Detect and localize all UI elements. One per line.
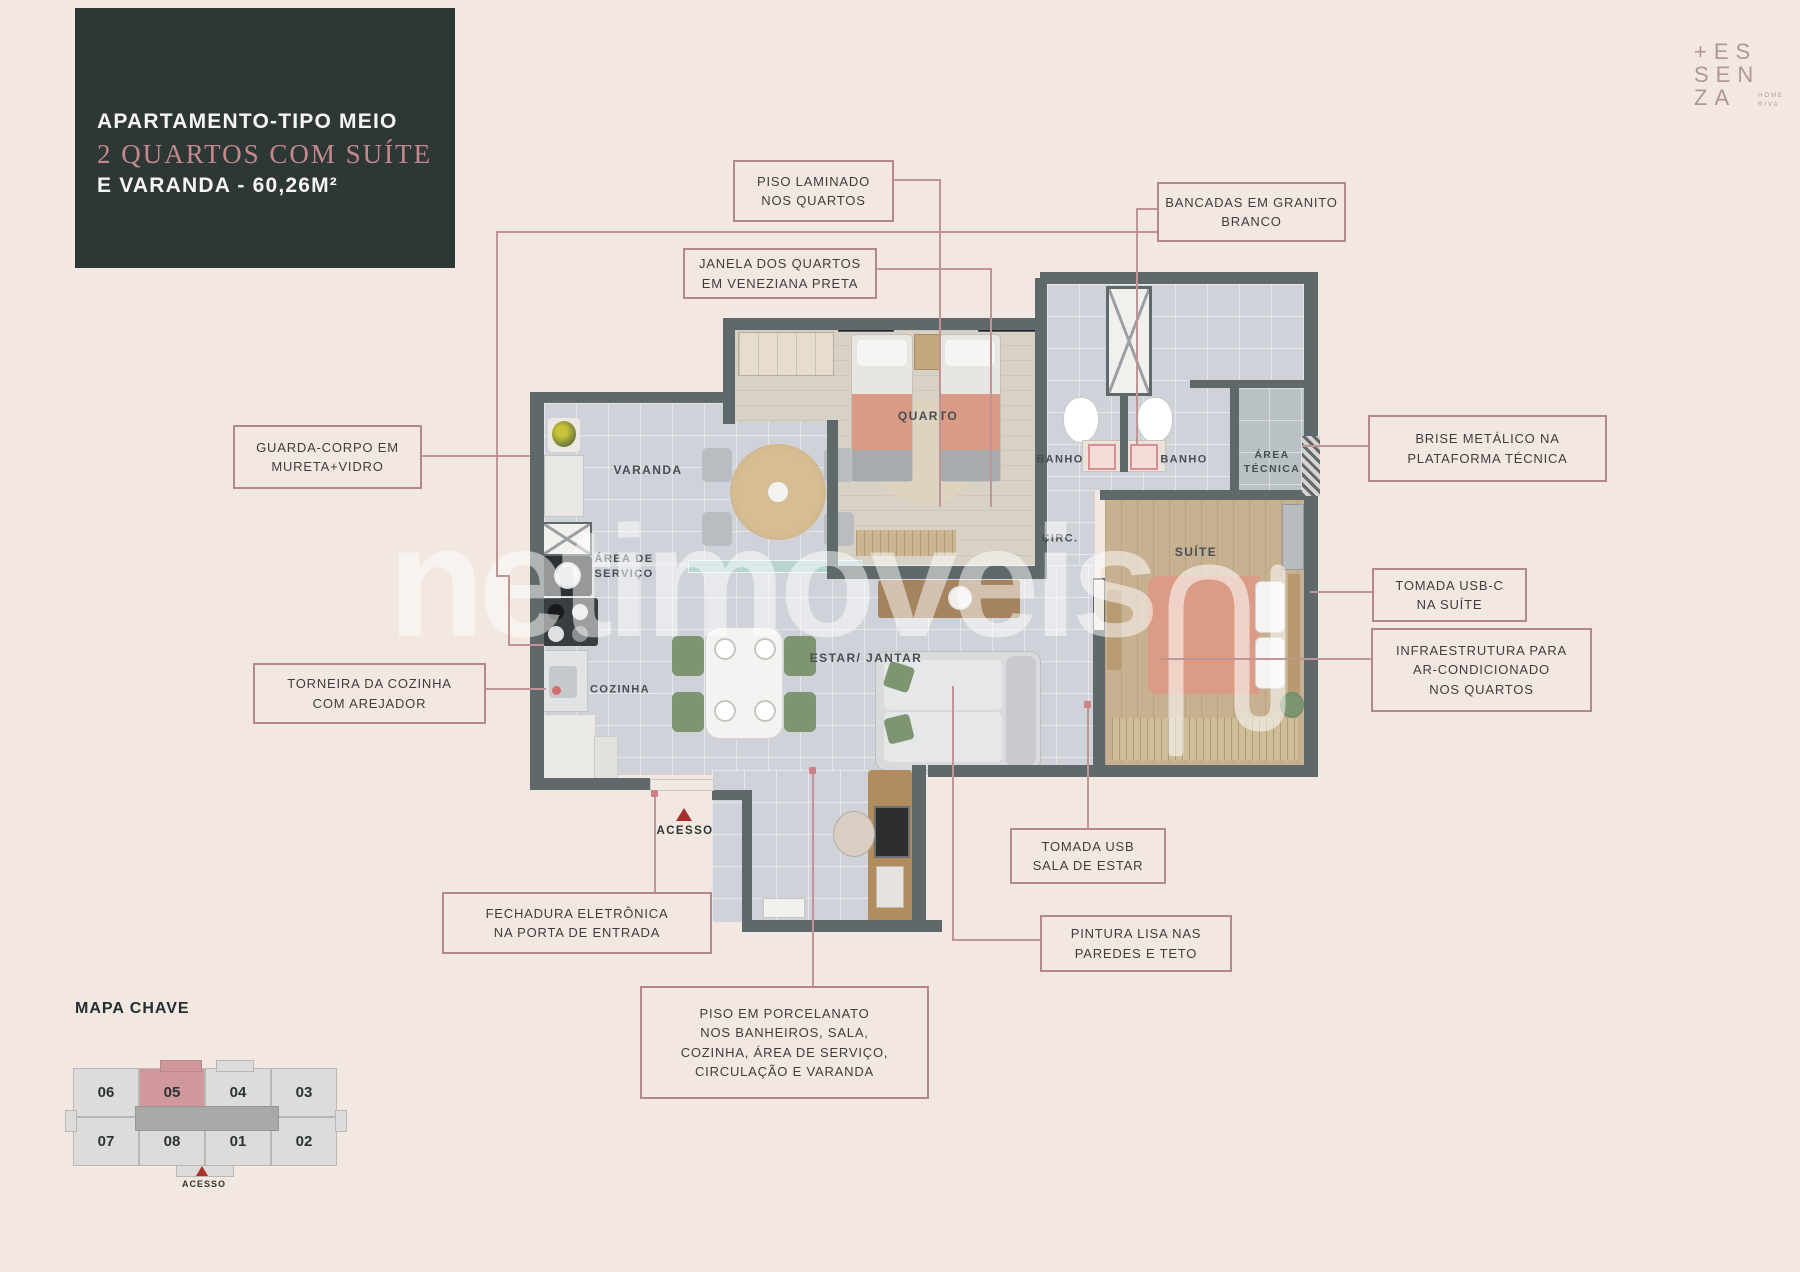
leader-guarda-corpo bbox=[418, 455, 530, 457]
leader-bancadas-cozinha bbox=[497, 231, 1159, 233]
callout-infra-ar: INFRAESTRUTURA PARA AR-CONDICIONADO NOS … bbox=[1371, 628, 1592, 712]
label-banho2: BANHO bbox=[1160, 453, 1207, 468]
desk-monitor bbox=[874, 806, 910, 858]
callout-porcelanato: PISO EM PORCELANATO NOS BANHEIROS, SALA,… bbox=[640, 986, 929, 1099]
quarto-bed1-pillow bbox=[857, 340, 907, 366]
map-unit-07: 07 bbox=[73, 1117, 139, 1166]
callout-brise-text: BRISE METÁLICO NA PLATAFORMA TÉCNICA bbox=[1407, 429, 1567, 468]
leader-porcelanato-dot bbox=[809, 767, 816, 774]
toilet2 bbox=[1138, 398, 1172, 442]
leader-pintura bbox=[953, 939, 1042, 941]
callout-pintura: PINTURA LISA NAS PAREDES E TETO bbox=[1040, 915, 1232, 972]
vanity-sink1-highlight bbox=[1088, 444, 1116, 470]
desk-chair bbox=[834, 812, 874, 856]
desk-lamp bbox=[876, 866, 904, 908]
hall-mat bbox=[763, 898, 805, 918]
callout-infra-ar-text: INFRAESTRUTURA PARA AR-CONDICIONADO NOS … bbox=[1396, 641, 1567, 700]
label-quarto: QUARTO bbox=[898, 408, 958, 424]
callout-tomada-usb: TOMADA USB SALA DE ESTAR bbox=[1010, 828, 1166, 884]
wall-area-tecnica-left bbox=[1230, 380, 1239, 490]
mapa-chave-title: MAPA CHAVE bbox=[75, 1000, 190, 1018]
flyer-canvas: APARTAMENTO-TIPO MEIO 2 QUARTOS COM SUÍT… bbox=[0, 0, 1800, 1272]
wall-banho-divider bbox=[1120, 396, 1128, 472]
acesso-arrow-icon bbox=[676, 808, 692, 821]
kitchen-faucet-highlight bbox=[552, 686, 561, 695]
label-banho1: BANHO bbox=[1036, 453, 1083, 468]
dining-chair-green bbox=[672, 692, 704, 732]
leader-bancadas-banho bbox=[1136, 208, 1138, 446]
netimoveis-watermark: netimoveis bbox=[388, 492, 1153, 673]
wall-banho-top bbox=[1040, 272, 1318, 284]
callout-bancadas: BANCADAS EM GRANITO BRANCO bbox=[1157, 182, 1346, 242]
leader-porcelanato bbox=[812, 772, 814, 988]
wall-hall-left bbox=[742, 798, 752, 932]
dining-chair-green bbox=[784, 692, 816, 732]
leader-bancadas-cozinha bbox=[496, 231, 498, 577]
title-line3: E VARANDA - 60,26M² bbox=[97, 174, 455, 198]
wall-area-tecnica bbox=[1190, 380, 1304, 388]
wall-right bbox=[1304, 272, 1318, 777]
label-cozinha: COZINHA bbox=[590, 683, 650, 698]
map-notch bbox=[65, 1110, 77, 1132]
callout-brise: BRISE METÁLICO NA PLATAFORMA TÉCNICA bbox=[1368, 415, 1607, 482]
callout-pintura-text: PINTURA LISA NAS PAREDES E TETO bbox=[1071, 924, 1202, 963]
wall-quarto-top bbox=[723, 318, 1047, 330]
map-notch bbox=[160, 1060, 202, 1072]
round-table-chair bbox=[702, 448, 732, 482]
callout-fechadura: FECHADURA ELETRÔNICA NA PORTA DE ENTRADA bbox=[442, 892, 712, 954]
wall-quarto-left-upper bbox=[723, 318, 735, 424]
callout-torneira: TORNEIRA DA COZINHA COM AREJADOR bbox=[253, 663, 486, 724]
map-unit-03: 03 bbox=[271, 1068, 337, 1117]
callout-torneira-text: TORNEIRA DA COZINHA COM AREJADOR bbox=[287, 674, 451, 713]
leader-piso-laminado bbox=[939, 179, 941, 507]
label-acesso: ACESSO bbox=[657, 824, 714, 840]
leader-tomada-usb bbox=[1087, 706, 1089, 830]
map-acesso-arrow-icon bbox=[196, 1166, 208, 1176]
dining-plate bbox=[754, 700, 776, 722]
dining-plate bbox=[714, 700, 736, 722]
callout-tomada-usbc: TOMADA USB-C NA SUÍTE bbox=[1372, 568, 1527, 622]
toilet1 bbox=[1064, 398, 1098, 442]
wall-kitchen-bottom bbox=[530, 778, 650, 790]
map-notch bbox=[335, 1110, 347, 1132]
leader-torneira bbox=[482, 688, 546, 690]
title-block: APARTAMENTO-TIPO MEIO 2 QUARTOS COM SUÍT… bbox=[75, 8, 455, 268]
title-line2: 2 QUARTOS COM SUÍTE bbox=[97, 139, 455, 170]
varanda-plant-leaves bbox=[552, 421, 576, 447]
leader-bancadas-cozinha bbox=[508, 644, 544, 646]
leader-janela bbox=[990, 268, 992, 507]
leader-fechadura bbox=[654, 795, 656, 894]
callout-janela: JANELA DOS QUARTOS EM VENEZIANA PRETA bbox=[683, 248, 877, 299]
netimoveis-logo-mark bbox=[1162, 556, 1292, 756]
callout-guarda-corpo: GUARDA-CORPO EM MURETA+VIDRO bbox=[233, 425, 422, 489]
leader-infra-ar bbox=[1160, 658, 1373, 660]
label-area-tecnica: ÁREA TÉCNICA bbox=[1244, 448, 1300, 476]
leader-tomada-usb-dot bbox=[1084, 701, 1091, 708]
callout-porcelanato-text: PISO EM PORCELANATO NOS BANHEIROS, SALA,… bbox=[681, 1004, 889, 1082]
quarto-bed2-pillow bbox=[945, 340, 995, 366]
wall-varanda-top bbox=[530, 392, 730, 403]
logo-line2: SEN bbox=[1694, 63, 1760, 86]
leader-bancadas-banho bbox=[1137, 208, 1159, 210]
logo-tagline: HOME RIVA bbox=[1758, 92, 1784, 110]
map-unit-06: 06 bbox=[73, 1068, 139, 1117]
callout-fechadura-text: FECHADURA ELETRÔNICA NA PORTA DE ENTRADA bbox=[486, 904, 669, 943]
leader-pintura bbox=[952, 686, 954, 941]
logo-line1: +ES bbox=[1694, 40, 1760, 63]
mapa-chave: 06 05 04 03 07 08 01 02 bbox=[73, 1068, 337, 1167]
wall-suite-bottom bbox=[928, 765, 1318, 777]
vanity-sink2-highlight bbox=[1130, 444, 1158, 470]
leader-brise bbox=[1302, 445, 1370, 447]
leader-bancadas-cozinha bbox=[508, 575, 510, 646]
map-corridor bbox=[135, 1106, 279, 1131]
callout-piso-laminado: PISO LAMINADO NOS QUARTOS bbox=[733, 160, 894, 222]
label-varanda: VARANDA bbox=[614, 462, 683, 478]
quarto-nightstand bbox=[914, 334, 940, 370]
wall-hall-right bbox=[912, 765, 926, 932]
callout-tomada-usbc-text: TOMADA USB-C NA SUÍTE bbox=[1395, 576, 1503, 615]
callout-janela-text: JANELA DOS QUARTOS EM VENEZIANA PRETA bbox=[699, 254, 861, 293]
title-line1: APARTAMENTO-TIPO MEIO bbox=[97, 110, 455, 134]
leader-fechadura-dot bbox=[651, 790, 658, 797]
elevator-shaft bbox=[1106, 286, 1152, 396]
entry-door bbox=[650, 779, 714, 791]
callout-piso-laminado-text: PISO LAMINADO NOS QUARTOS bbox=[757, 172, 870, 211]
callout-guarda-corpo-text: GUARDA-CORPO EM MURETA+VIDRO bbox=[256, 438, 399, 477]
leader-janela bbox=[873, 268, 992, 270]
map-notch bbox=[216, 1060, 254, 1072]
callout-tomada-usb-text: TOMADA USB SALA DE ESTAR bbox=[1033, 837, 1144, 876]
map-unit-02: 02 bbox=[271, 1117, 337, 1166]
callout-bancadas-text: BANCADAS EM GRANITO BRANCO bbox=[1165, 193, 1337, 232]
quarto-wardrobe bbox=[738, 332, 834, 376]
map-acesso-label: ACESSO bbox=[182, 1178, 226, 1190]
logo-line3: ZA bbox=[1694, 86, 1760, 109]
quarto-bed1-foot bbox=[852, 450, 912, 481]
leader-tomada-usbc bbox=[1310, 591, 1374, 593]
leader-piso-laminado bbox=[890, 179, 941, 181]
essenza-logo: +ES SEN ZA HOME RIVA bbox=[1694, 40, 1760, 109]
